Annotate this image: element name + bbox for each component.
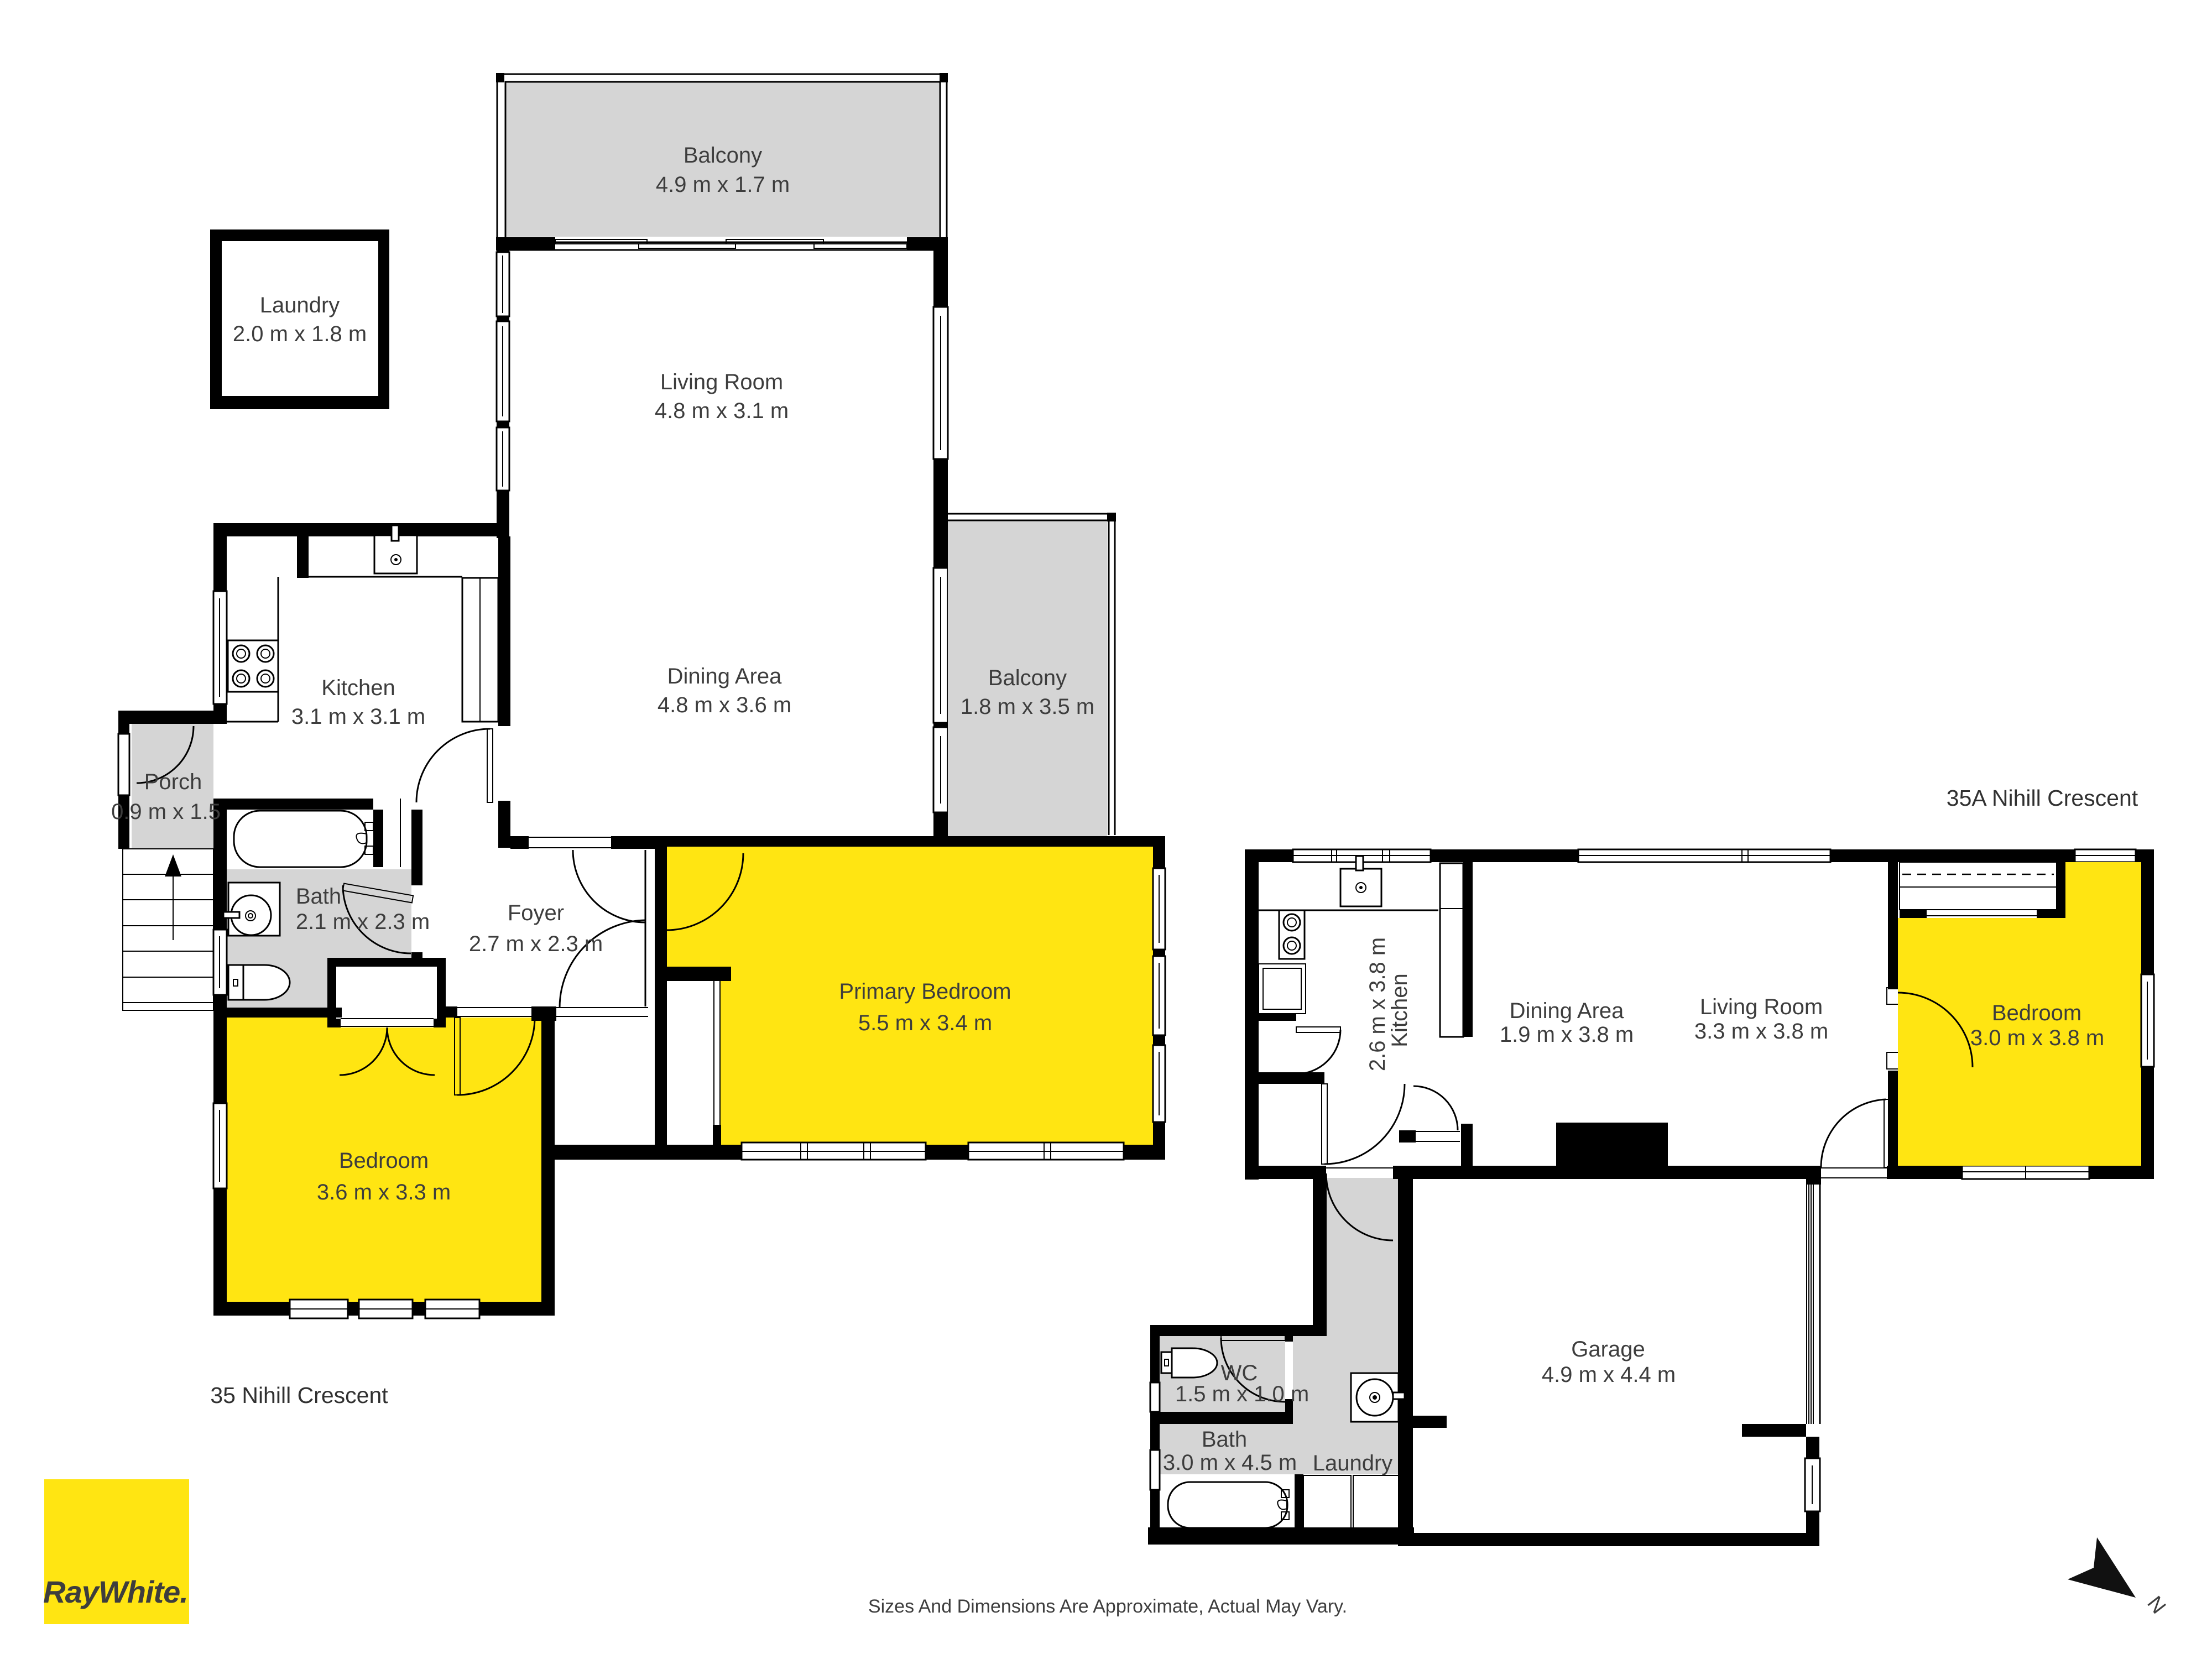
svg-text:3.3 m x 3.8 m: 3.3 m x 3.8 m (1694, 1019, 1828, 1044)
svg-text:35 Nihill Crescent: 35 Nihill Crescent (210, 1383, 388, 1408)
svg-text:Primary Bedroom: Primary Bedroom (839, 979, 1011, 1004)
svg-text:4.9 m x 4.4 m: 4.9 m x 4.4 m (1542, 1363, 1676, 1387)
svg-text:Bath: Bath (1202, 1427, 1247, 1452)
svg-text:Bedroom: Bedroom (339, 1149, 429, 1173)
svg-text:Kitchen: Kitchen (321, 676, 395, 700)
svg-text:2.1 m x 2.3 m: 2.1 m x 2.3 m (296, 910, 430, 934)
svg-text:Laundry: Laundry (1313, 1451, 1393, 1475)
svg-text:Living Room: Living Room (1700, 995, 1823, 1019)
svg-text:1.5 m x 1.0 m: 1.5 m x 1.0 m (1175, 1382, 1309, 1406)
svg-text:Foyer: Foyer (508, 901, 564, 925)
svg-text:Balcony: Balcony (684, 143, 762, 168)
svg-text:Porch: Porch (144, 770, 202, 794)
svg-text:1.8 m x 3.5 m: 1.8 m x 3.5 m (961, 695, 1094, 719)
svg-text:Balcony: Balcony (988, 666, 1067, 690)
svg-text:4.8 m x 3.6 m: 4.8 m x 3.6 m (658, 693, 791, 717)
svg-text:3.1 m x 3.1 m: 3.1 m x 3.1 m (291, 705, 425, 729)
svg-text:2.6 m x 3.8 m: 2.6 m x 3.8 m (1365, 937, 1390, 1071)
svg-text:Bedroom: Bedroom (1992, 1001, 2081, 1025)
svg-text:35A Nihill Crescent: 35A Nihill Crescent (1947, 785, 2138, 811)
svg-text:5.5 m x 3.4 m: 5.5 m x 3.4 m (858, 1011, 992, 1035)
svg-text:3.6 m x 3.3 m: 3.6 m x 3.3 m (317, 1180, 451, 1204)
svg-text:3.0 m x 4.5 m: 3.0 m x 4.5 m (1163, 1451, 1297, 1475)
svg-text:2.0 m x 1.8 m: 2.0 m x 1.8 m (233, 322, 367, 346)
svg-text:4.9 m x 1.7 m: 4.9 m x 1.7 m (656, 173, 790, 197)
svg-text:Dining Area: Dining Area (667, 664, 782, 688)
svg-text:Dining Area: Dining Area (1510, 999, 1625, 1023)
svg-text:Garage: Garage (1571, 1337, 1645, 1361)
svg-text:3.0 m x 3.8 m: 3.0 m x 3.8 m (1970, 1026, 2104, 1050)
svg-text:Laundry: Laundry (260, 293, 340, 317)
svg-text:Bath: Bath (296, 884, 341, 909)
svg-text:2.7 m x 2.3 m: 2.7 m x 2.3 m (469, 932, 603, 956)
svg-text:4.8 m x 3.1 m: 4.8 m x 3.1 m (655, 399, 789, 423)
svg-text:Kitchen: Kitchen (1387, 973, 1412, 1047)
svg-text:Sizes And Dimensions Are Appro: Sizes And Dimensions Are Approximate, Ac… (868, 1596, 1347, 1617)
svg-text:RayWhite.: RayWhite. (43, 1574, 188, 1609)
svg-text:0.9 m x 1.5: 0.9 m x 1.5 (111, 800, 221, 824)
svg-text:Living Room: Living Room (660, 370, 783, 394)
svg-text:1.9 m x 3.8 m: 1.9 m x 3.8 m (1500, 1022, 1634, 1047)
